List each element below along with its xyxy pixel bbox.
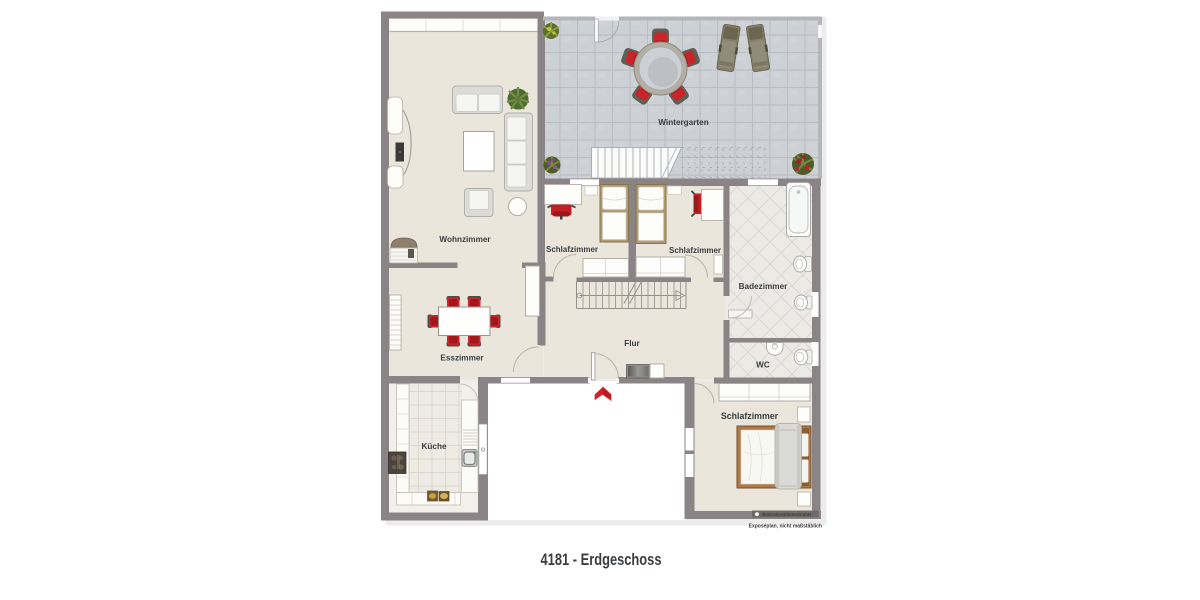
svg-text:Schlafzimmer: Schlafzimmer [669,246,721,255]
svg-text:Flur: Flur [624,339,640,348]
svg-text:IllustrationDimmoGmbH: IllustrationDimmoGmbH [762,512,811,517]
svg-text:WC: WC [756,361,770,370]
svg-text:Esszimmer: Esszimmer [440,354,484,363]
svg-text:Badezimmer: Badezimmer [739,282,789,291]
svg-text:Küche: Küche [421,442,446,451]
svg-text:Schlafzimmer: Schlafzimmer [546,245,598,254]
svg-text:Wintergarten: Wintergarten [658,118,708,127]
svg-text:4181 - Erdgeschoss: 4181 - Erdgeschoss [541,551,662,569]
svg-text:Wohnzimmer: Wohnzimmer [439,235,491,244]
svg-text:Schlafzimmer: Schlafzimmer [721,411,779,421]
svg-text:Exposéplan, nicht maßstäblich: Exposéplan, nicht maßstäblich [749,523,822,529]
